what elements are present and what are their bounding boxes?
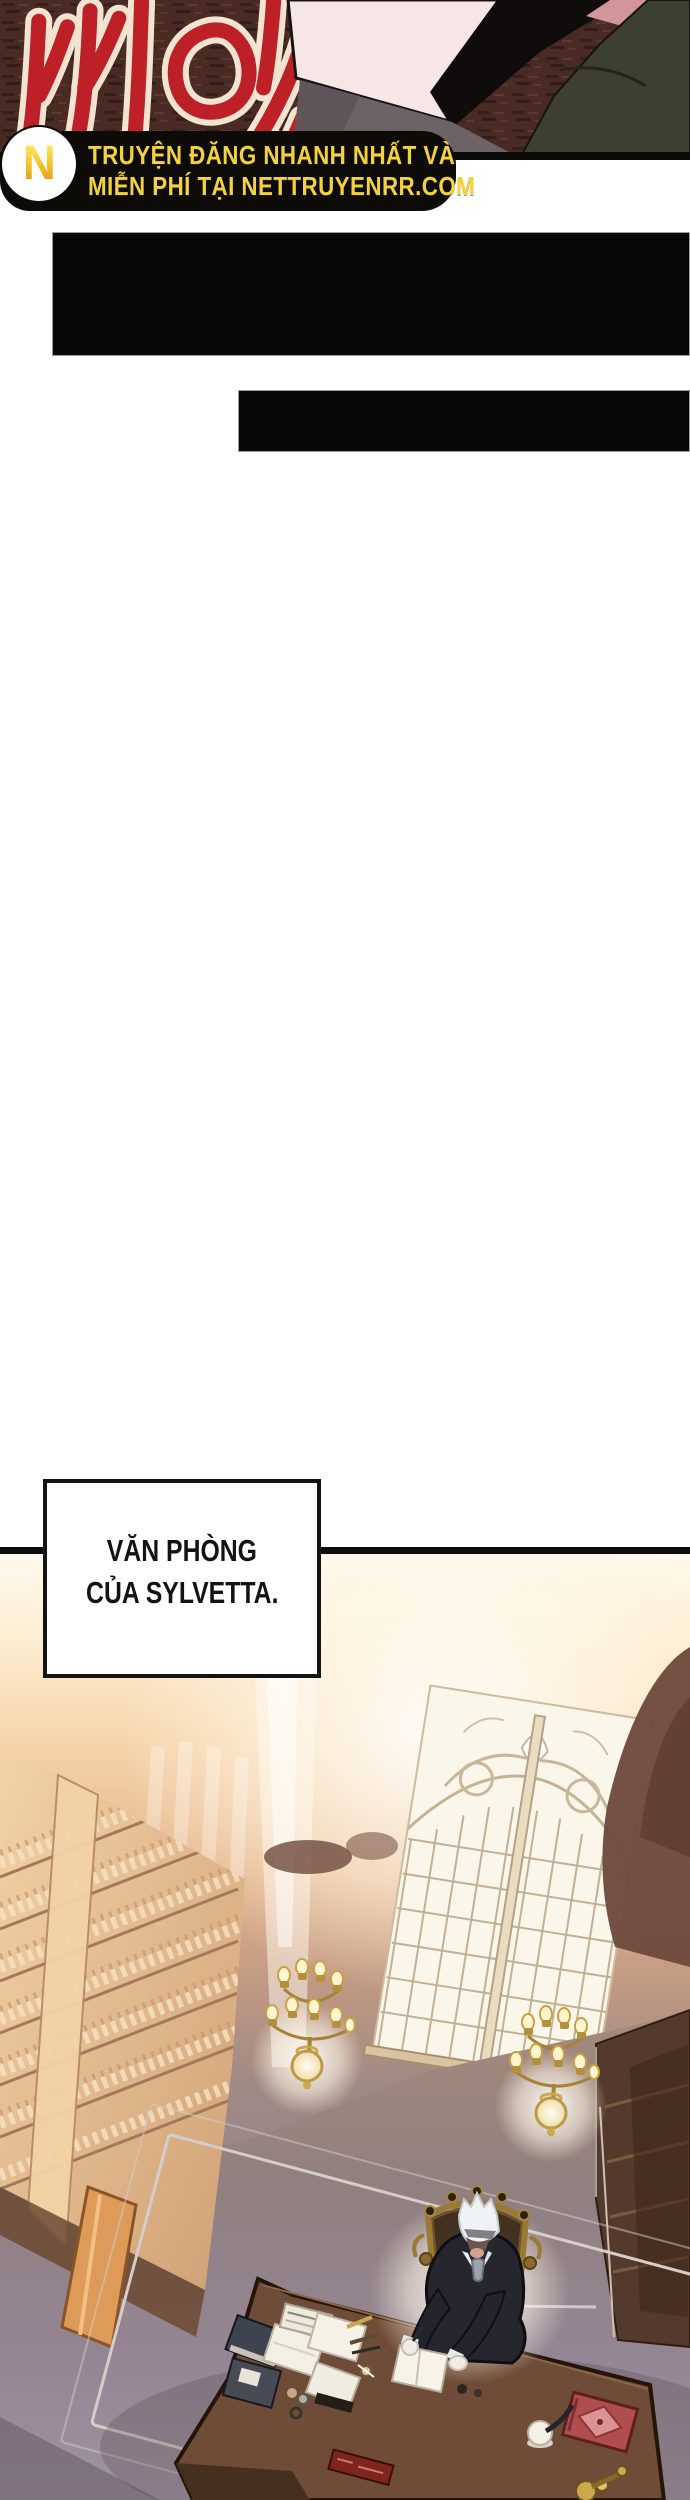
caption-line-1: VĂN PHÒNG	[107, 1530, 257, 1572]
right-hand	[449, 2356, 467, 2370]
blacked-out-panel-1	[52, 232, 690, 356]
foreground-blur-blob-2	[346, 1832, 398, 1860]
site-watermark-badge: N TRUYỆN ĐĂNG NHANH NHẤT VÀ MIỄN PHÍ TẠI…	[0, 131, 456, 211]
comic-page: N TRUYỆN ĐĂNG NHANH NHẤT VÀ MIỄN PHÍ TẠI…	[0, 0, 690, 2500]
left-hand	[402, 2339, 418, 2355]
watermark-text: TRUYỆN ĐĂNG NHANH NHẤT VÀ MIỄN PHÍ TẠI N…	[88, 140, 538, 202]
office-scene	[0, 1547, 690, 2500]
blacked-out-panel-2	[238, 390, 690, 452]
site-logo-letter: N	[23, 140, 56, 188]
site-logo-circle: N	[2, 127, 76, 201]
watermark-line-2: MIỄN PHÍ TẠI NETTRUYENRR.COM	[88, 171, 475, 202]
foreground-blur-blob	[264, 1840, 352, 1874]
caption-line-2: CỦA SYLVETTA.	[86, 1572, 278, 1614]
narration-caption-box: VĂN PHÒNG CỦA SYLVETTA.	[43, 1479, 321, 1678]
office-scene-panel	[0, 1547, 690, 2500]
face	[470, 2248, 484, 2258]
watermark-line-1: TRUYỆN ĐĂNG NHANH NHẤT VÀ	[88, 140, 475, 171]
cravat	[472, 2259, 484, 2282]
